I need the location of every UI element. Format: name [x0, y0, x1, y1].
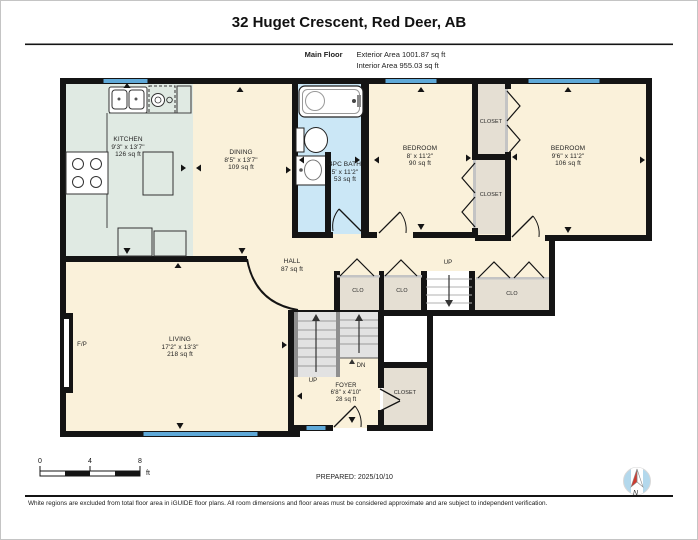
- scale-unit: ft: [146, 470, 150, 477]
- room-label-clo-1: CLO: [352, 288, 363, 294]
- room-label-living: LIVING 17'2" x 13'3" 218 sq ft: [162, 336, 199, 359]
- room-name: BEDROOM: [403, 145, 437, 153]
- room-label-foyer: FOYER 6'8" x 4'10" 28 sq ft: [331, 383, 362, 404]
- room-name: CLO: [352, 288, 363, 294]
- page-title: 32 Huget Crescent, Red Deer, AB: [0, 14, 698, 31]
- sink-icon: [109, 83, 147, 113]
- room-area: 126 sq ft: [111, 151, 144, 159]
- window-foyer: [306, 426, 326, 431]
- room-dims: 9'3" x 13'7": [111, 144, 144, 152]
- room-name: CLOSET: [480, 192, 502, 198]
- room-area: 106 sq ft: [551, 160, 585, 168]
- room-label-closet-bottom: CLOSET: [480, 192, 502, 198]
- toilet-icon: [296, 128, 328, 153]
- stair-direction: DN: [357, 363, 366, 370]
- room-area: 28 sq ft: [331, 397, 362, 404]
- room-name: 4PC BATH: [329, 161, 361, 169]
- stair-direction: UP: [309, 378, 318, 385]
- room-label-hall: HALL 87 sq ft: [281, 258, 303, 273]
- scale-bar: [40, 466, 140, 476]
- room-label-bath: 4PC BATH 5' x 11'2" 53 sq ft: [329, 161, 361, 184]
- room-label-bedroom-left: BEDROOM 8' x 11'2" 90 sq ft: [403, 145, 437, 168]
- label-up-stairs: UP: [309, 378, 318, 385]
- room-name: CLO: [506, 291, 517, 297]
- room-area: 53 sq ft: [329, 176, 361, 184]
- floor-label: Main Floor: [305, 50, 343, 72]
- scale-tick-0: 0: [38, 458, 42, 465]
- area-summary: Exterior Area 1001.87 sq ft Interior Are…: [357, 50, 446, 72]
- room-name: CLOSET: [394, 390, 416, 396]
- stair-direction: UP: [444, 260, 453, 267]
- disclaimer-text: White regions are excluded from total fl…: [28, 500, 547, 507]
- prepared-date: PREPARED: 2025/10/10: [316, 474, 393, 481]
- room-label-kitchen: KITCHEN 9'3" x 13'7" 126 sq ft: [111, 136, 144, 159]
- room-dims: 9'6" x 11'2": [551, 153, 585, 161]
- floorplan-sheet: 32 Huget Crescent, Red Deer, AB Main Flo…: [0, 0, 698, 540]
- label-down-stairs: DN: [357, 363, 366, 370]
- room-name: CLO: [396, 288, 407, 294]
- room-label-closet-top: CLOSET: [480, 119, 502, 125]
- room-dims: 5' x 11'2": [329, 169, 361, 177]
- window-bedroom-left: [385, 79, 437, 84]
- fireplace-abbrev: F/P: [77, 342, 87, 349]
- interior-area: Interior Area 955.03 sq ft: [357, 61, 446, 72]
- room-area: 90 sq ft: [403, 160, 437, 168]
- room-name: CLOSET: [480, 119, 502, 125]
- room-area: 87 sq ft: [281, 266, 303, 274]
- room-name: HALL: [281, 258, 303, 266]
- room-label-clo-3: CLO: [506, 291, 517, 297]
- exterior-area: Exterior Area 1001.87 sq ft: [357, 50, 446, 61]
- room-name: LIVING: [162, 336, 199, 344]
- floorplan-drawing: [0, 0, 698, 540]
- room-label-clo-2: CLO: [396, 288, 407, 294]
- label-fireplace: F/P: [77, 342, 87, 349]
- fireplace: [60, 313, 73, 393]
- window-living: [143, 432, 258, 437]
- room-name: KITCHEN: [111, 136, 144, 144]
- window-bedroom-right: [528, 79, 600, 84]
- room-label-closet-foyer: CLOSET: [394, 390, 416, 396]
- floor-summary: Main Floor Exterior Area 1001.87 sq ft I…: [0, 50, 698, 72]
- room-area: 218 sq ft: [162, 351, 199, 359]
- stove-icon: [66, 152, 108, 194]
- room-dims: 8' x 11'2": [403, 153, 437, 161]
- window-kitchen: [103, 79, 148, 84]
- room-dims: 17'2" x 13'3": [162, 344, 199, 352]
- scale-tick-4: 4: [88, 458, 92, 465]
- scale-tick-8: 8: [138, 458, 142, 465]
- room-label-dining: DINING 8'5" x 13'7" 109 sq ft: [224, 149, 257, 172]
- room-label-bedroom-right: BEDROOM 9'6" x 11'2" 106 sq ft: [551, 145, 585, 168]
- compass-north-label: N: [633, 490, 638, 497]
- room-name: BEDROOM: [551, 145, 585, 153]
- label-up-hall: UP: [444, 260, 453, 267]
- room-name: FOYER: [331, 383, 362, 390]
- room-dims: 6'8" x 4'10": [331, 390, 362, 397]
- room-name: DINING: [224, 149, 257, 157]
- room-area: 109 sq ft: [224, 164, 257, 172]
- bathtub-icon: [299, 86, 363, 117]
- room-dims: 8'5" x 13'7": [224, 157, 257, 165]
